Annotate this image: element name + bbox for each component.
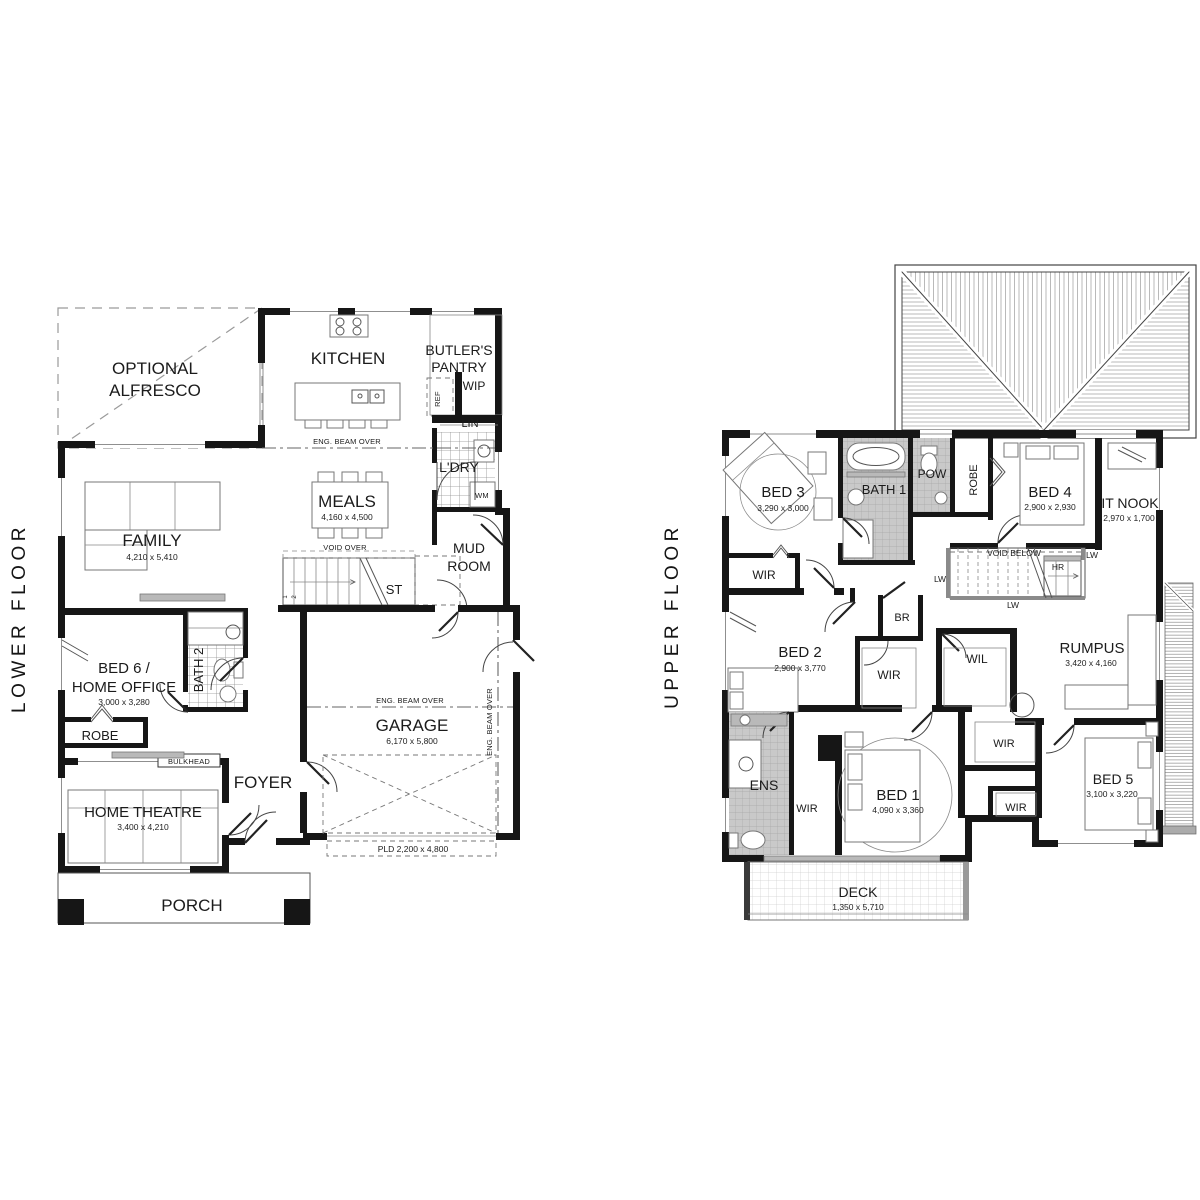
wm-label: WM [475,491,489,500]
beam-meals-label: ENG. BEAM OVER [313,437,381,446]
alfresco-outline [58,308,262,448]
kitchen-label: KITCHEN [311,349,386,368]
bed6-bath2-block [58,608,248,748]
lin-label: LIN [461,418,478,430]
beam-garage-v-label: ENG. BEAM OVER [485,688,494,756]
pow-label: POW [918,467,947,481]
bed2-label: BED 2 [778,644,821,661]
wil-label: WIL [966,652,988,666]
family-dim: 4,210 x 5,410 [126,552,178,562]
lower-floor-title: LOWER FLOOR [9,523,30,713]
alfresco-label-1: OPTIONAL [112,359,198,378]
family-label: FAMILY [122,531,181,550]
bath1-label: BATH 1 [862,482,907,497]
bed6-label-2: HOME OFFICE [72,679,176,696]
wir-bed5-label: WIR [1005,802,1026,814]
st-label: ST [386,582,403,597]
void-below-label: VOID BELOW [987,548,1041,558]
butlers-label-1: BUTLER'S [425,342,492,358]
lw-left-label: LW [934,574,946,584]
deck-dim: 1,350 x 5,710 [832,902,884,912]
deck-label: DECK [839,884,879,900]
bed5-dim: 3,100 x 3,220 [1086,789,1138,799]
bed2-dim: 2,900 x 3,770 [774,663,826,673]
upper-floor-plan: BATH 1 POW [722,265,1196,920]
side-roof-strip [1162,583,1196,834]
bed1-dim: 4,090 x 3,360 [872,805,924,815]
rumpus-label: RUMPUS [1059,640,1124,657]
bed4-label: BED 4 [1028,484,1071,501]
wir-hall-label: WIR [993,738,1014,750]
pld-label: PLD 2,200 x 4,800 [378,844,449,854]
floorplan-drawing: OPTIONAL ALFRESCO KITCHEN BUTLER'S PANTR… [0,0,1200,1200]
bed6-label-1: BED 6 / [98,660,151,677]
hr-label: HR [1052,562,1064,572]
meals-dim: 4,160 x 4,500 [321,512,373,522]
br-label: BR [894,612,909,624]
bulkhead-label: BULKHEAD [168,757,210,766]
floorplan-sheet: OPTIONAL ALFRESCO KITCHEN BUTLER'S PANTR… [0,0,1200,1200]
bed3-block [722,433,844,595]
bed6-dim: 3,000 x 3,280 [98,697,150,707]
robe-upper-label: ROBE [968,464,980,495]
mud-label-1: MUD [453,540,485,556]
rumpus-dim: 3,420 x 4,160 [1065,658,1117,668]
ens-label: ENS [750,777,779,793]
garage-label: GARAGE [376,716,449,735]
itnook-dim: 2,970 x 1,700 [1103,513,1155,523]
lower-floor-plan: OPTIONAL ALFRESCO KITCHEN BUTLER'S PANTR… [58,308,534,925]
beam-garage-label: ENG. BEAM OVER [376,696,444,705]
bed1-label: BED 1 [876,787,919,804]
wir-bed3-label: WIR [752,568,776,582]
stair-num-2: 2 [292,595,298,599]
stairs-upper: VOID BELOW HR LW LW LW [934,548,1098,610]
bed3-dim: 3,290 x 3,000 [757,503,809,513]
wir-bed1-label: WIR [796,803,817,815]
bath2-label: BATH 2 [191,648,206,693]
robe-label: ROBE [82,728,119,743]
porch-label: PORCH [161,896,222,915]
void-over-label: VOID OVER [323,543,367,552]
front-door [245,812,276,843]
garage-dim: 6,170 x 5,800 [386,736,438,746]
wil-block [936,628,1017,712]
wip-label: WIP [463,379,486,393]
itnook-label: IT NOOK [1101,495,1159,511]
bed3-label: BED 3 [761,484,804,501]
alfresco-label-2: ALFRESCO [109,381,201,400]
kitchen-fixtures [295,315,400,428]
ldry-label: L'DRY [439,459,479,475]
theatre-dim: 3,400 x 4,210 [117,822,169,832]
lw-right-label: LW [1086,550,1098,560]
theatre-label: HOME THEATRE [84,804,202,821]
deck-block: DECK 1,350 x 5,710 [744,862,969,920]
bath1-block: BATH 1 POW [838,438,955,565]
ref-label: REF [433,391,442,407]
wir-bed2-label: WIR [877,668,901,682]
butlers-label-2: PANTRY [431,359,487,375]
stair-num-1: 1 [283,595,289,599]
lw-bottom-label: LW [1007,600,1019,610]
meals-label: MEALS [318,492,376,511]
bed1-block [818,712,965,855]
lower-labels: OPTIONAL ALFRESCO KITCHEN BUTLER'S PANTR… [72,342,494,915]
ens-block: ENS [729,712,794,855]
bed5-label: BED 5 [1093,771,1134,787]
bed4-dim: 2,900 x 2,930 [1024,502,1076,512]
mud-label-2: ROOM [447,558,491,574]
roof-plan [895,265,1196,440]
upper-floor-title: UPPER FLOOR [662,523,683,709]
rumpus-block [1010,615,1163,753]
foyer-label: FOYER [234,773,293,792]
